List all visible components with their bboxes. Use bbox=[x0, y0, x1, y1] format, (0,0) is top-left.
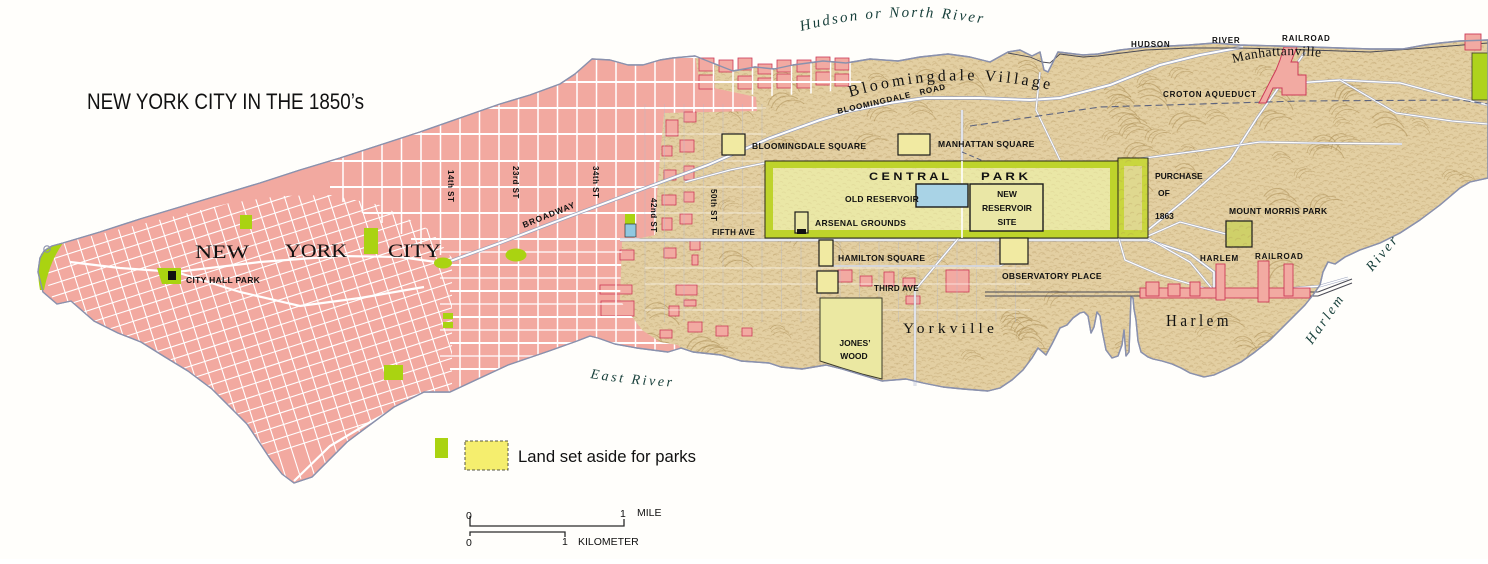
svg-text:FIFTH AVE: FIFTH AVE bbox=[712, 228, 756, 237]
svg-text:NEW: NEW bbox=[195, 242, 249, 263]
svg-text:CROTON AQUEDUCT: CROTON AQUEDUCT bbox=[1163, 90, 1257, 99]
svg-text:14th ST: 14th ST bbox=[446, 170, 455, 202]
svg-text:RAILROAD: RAILROAD bbox=[1282, 34, 1331, 43]
svg-text:JONES’: JONES’ bbox=[839, 338, 870, 348]
svg-text:0: 0 bbox=[466, 510, 472, 522]
svg-text:WOOD: WOOD bbox=[840, 351, 867, 361]
svg-text:1: 1 bbox=[562, 536, 568, 548]
svg-text:MILE: MILE bbox=[637, 507, 662, 519]
svg-text:0: 0 bbox=[466, 537, 472, 549]
svg-text:42nd ST: 42nd ST bbox=[649, 198, 658, 233]
svg-text:CITY: CITY bbox=[388, 241, 441, 262]
svg-text:MOUNT MORRIS PARK: MOUNT MORRIS PARK bbox=[1229, 206, 1328, 216]
svg-text:Yorkville: Yorkville bbox=[903, 321, 998, 337]
svg-text:Land set aside for parks: Land set aside for parks bbox=[518, 447, 696, 466]
svg-text:SITE: SITE bbox=[998, 217, 1017, 227]
svg-text:34th ST: 34th ST bbox=[591, 166, 600, 198]
svg-text:PURCHASE: PURCHASE bbox=[1155, 171, 1203, 181]
svg-text:NEW: NEW bbox=[997, 189, 1018, 199]
svg-text:KILOMETER: KILOMETER bbox=[578, 536, 639, 548]
svg-text:OF: OF bbox=[1158, 188, 1170, 198]
svg-text:C E N T R A L: C E N T R A L bbox=[869, 171, 949, 183]
svg-text:23rd ST: 23rd ST bbox=[511, 166, 520, 199]
svg-text:RIVER: RIVER bbox=[1212, 36, 1240, 45]
svg-text:RAILROAD: RAILROAD bbox=[1255, 252, 1304, 261]
svg-text:MANHATTAN SQUARE: MANHATTAN SQUARE bbox=[938, 139, 1035, 149]
svg-text:OBSERVATORY PLACE: OBSERVATORY PLACE bbox=[1002, 271, 1102, 281]
svg-text:50th ST: 50th ST bbox=[709, 189, 718, 221]
svg-text:RESERVOIR: RESERVOIR bbox=[982, 203, 1032, 213]
svg-text:THIRD AVE: THIRD AVE bbox=[874, 284, 919, 293]
svg-text:NEW YORK CITY IN THE 1850’s: NEW YORK CITY IN THE 1850’s bbox=[87, 89, 364, 114]
svg-text:OLD RESERVOIR: OLD RESERVOIR bbox=[845, 194, 919, 204]
svg-text:ARSENAL GROUNDS: ARSENAL GROUNDS bbox=[815, 218, 906, 228]
svg-text:P A R K: P A R K bbox=[981, 171, 1028, 183]
svg-text:YORK: YORK bbox=[285, 241, 347, 262]
svg-text:CITY HALL PARK: CITY HALL PARK bbox=[186, 275, 261, 285]
svg-text:1863: 1863 bbox=[1155, 211, 1174, 221]
svg-text:HAMILTON SQUARE: HAMILTON SQUARE bbox=[838, 253, 925, 263]
svg-text:HARLEM: HARLEM bbox=[1200, 254, 1239, 263]
svg-text:1: 1 bbox=[620, 508, 626, 520]
svg-text:Harlem: Harlem bbox=[1166, 311, 1232, 330]
svg-text:HUDSON: HUDSON bbox=[1131, 40, 1170, 49]
svg-text:BLOOMINGDALE SQUARE: BLOOMINGDALE SQUARE bbox=[752, 141, 866, 151]
